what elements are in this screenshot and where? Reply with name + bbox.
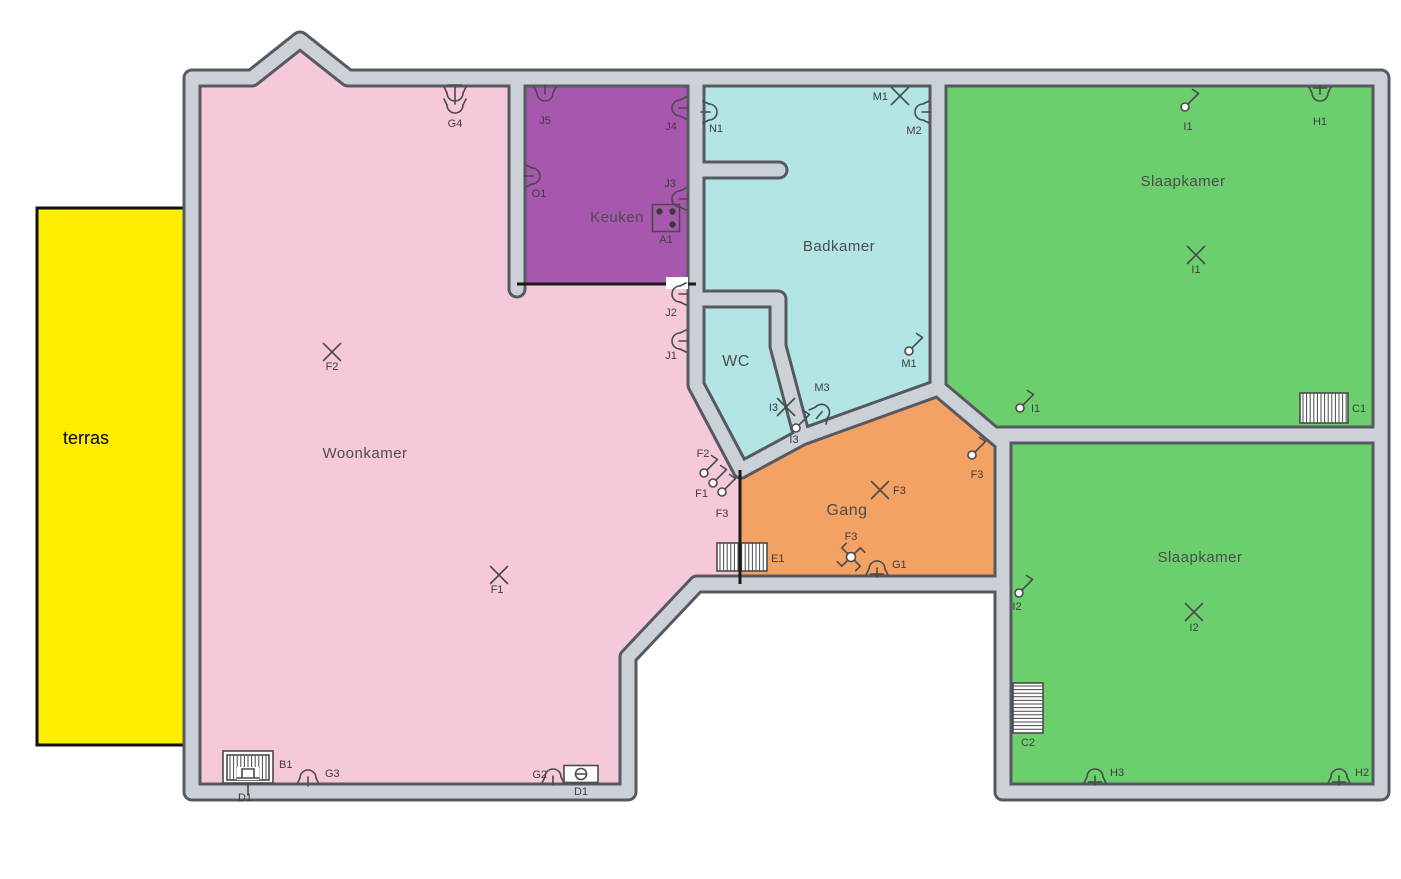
G3-label: G3 bbox=[325, 768, 340, 780]
C1-radiator-v-icon bbox=[1300, 393, 1348, 423]
F1-lamp-label: F1 bbox=[491, 584, 504, 596]
F3-switch-b-label: F3 bbox=[971, 469, 984, 481]
E1-radiator-v-icon bbox=[717, 543, 767, 571]
H2-label: H2 bbox=[1355, 767, 1369, 779]
F1-switch-label: F1 bbox=[695, 488, 708, 500]
C1-label: C1 bbox=[1352, 403, 1366, 415]
F2-lamp-label: F2 bbox=[326, 361, 339, 373]
C2-label: C2 bbox=[1021, 737, 1035, 749]
I2-switch-label: I2 bbox=[1012, 601, 1021, 613]
I1-lamp-label: I1 bbox=[1191, 264, 1200, 276]
N1-label: N1 bbox=[709, 123, 723, 135]
D1-box-thermostat-icon bbox=[564, 766, 598, 783]
J4-label: J4 bbox=[665, 121, 677, 133]
J3-label: J3 bbox=[664, 178, 676, 190]
G4-label: G4 bbox=[448, 118, 463, 130]
M1-lamp-label: M1 bbox=[873, 91, 888, 103]
I2-lamp-label: I2 bbox=[1189, 622, 1198, 634]
I1-switch-a-label: I1 bbox=[1183, 121, 1192, 133]
terras-label: terras bbox=[63, 428, 109, 448]
I3-lamp-label: I3 bbox=[769, 402, 778, 414]
F3-cross-label: F3 bbox=[845, 531, 858, 543]
room-label-woonkamer: Woonkamer bbox=[322, 445, 407, 462]
room-slaapkamer-1 bbox=[938, 78, 1381, 440]
A1-label: A1 bbox=[659, 234, 672, 246]
H1-label: H1 bbox=[1313, 116, 1327, 128]
room-label-slaapkamer-1: Slaapkamer bbox=[1140, 173, 1225, 190]
E1-label: E1 bbox=[771, 553, 784, 565]
terras-area bbox=[37, 208, 186, 745]
room-label-keuken: Keuken bbox=[590, 209, 644, 226]
room-label-gang: Gang bbox=[826, 502, 867, 519]
J1-label: J1 bbox=[665, 350, 677, 362]
D1-boiler-label: D1 bbox=[238, 792, 252, 804]
G2-label: G2 bbox=[532, 769, 547, 781]
J5-label: J5 bbox=[539, 115, 551, 127]
D1-box-label: D1 bbox=[574, 786, 588, 798]
floorplan-container: WoonkamerKeukenBadkamerWCGangSlaapkamerS… bbox=[0, 0, 1401, 879]
M3-label: M3 bbox=[814, 382, 829, 394]
I1-switch-b-label: I1 bbox=[1031, 403, 1040, 415]
floorplan-page: WoonkamerKeukenBadkamerWCGangSlaapkamerS… bbox=[0, 0, 1401, 879]
room-label-slaapkamer-2: Slaapkamer bbox=[1157, 549, 1242, 566]
M1-switch-label: M1 bbox=[901, 358, 916, 370]
H3-label: H3 bbox=[1110, 767, 1124, 779]
M2-label: M2 bbox=[906, 125, 921, 137]
I3-switch-label: I3 bbox=[789, 434, 798, 446]
room-label-badkamer: Badkamer bbox=[803, 238, 875, 255]
J2-label: J2 bbox=[665, 307, 677, 319]
F2-switch-label: F2 bbox=[697, 448, 710, 460]
O1-label: O1 bbox=[532, 188, 547, 200]
F3-lamp-label: F3 bbox=[893, 485, 906, 497]
room-label-wc: WC bbox=[722, 353, 750, 370]
C2-radiator-h-icon bbox=[1013, 683, 1043, 733]
G1-label: G1 bbox=[892, 559, 907, 571]
F3-switch-a-label: F3 bbox=[716, 508, 729, 520]
B1-label: B1 bbox=[279, 759, 292, 771]
floorplan-svg: WoonkamerKeukenBadkamerWCGangSlaapkamerS… bbox=[0, 0, 1401, 879]
